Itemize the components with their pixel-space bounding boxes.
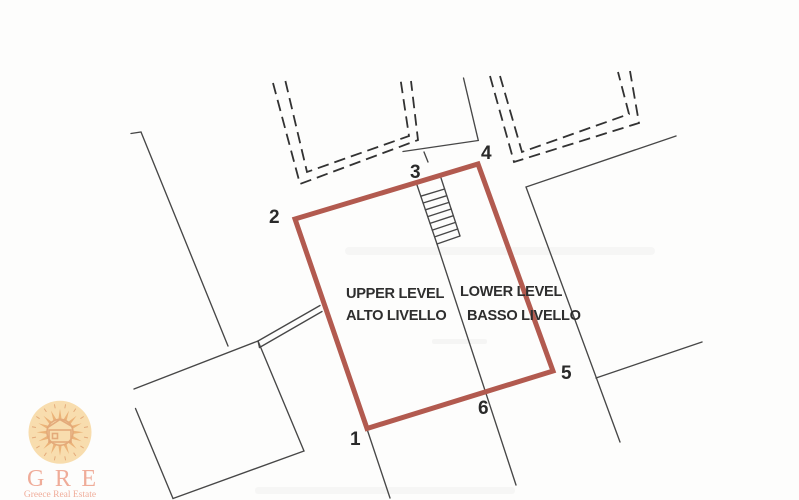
svg-text:LOWER LEVEL: LOWER LEVEL [460,284,562,300]
svg-text:ALTO LIVELLO: ALTO LIVELLO [346,308,446,324]
svg-text:5: 5 [561,363,572,384]
svg-text:Greece Real Estate: Greece Real Estate [24,490,96,500]
svg-text:2: 2 [269,207,280,228]
svg-text:UPPER LEVEL: UPPER LEVEL [346,286,444,302]
svg-text:4: 4 [481,143,492,164]
svg-text:BASSO LIVELLO: BASSO LIVELLO [467,308,581,324]
svg-text:6: 6 [478,398,489,419]
svg-text:GRE: GRE [27,466,107,492]
svg-text:3: 3 [410,162,421,183]
svg-text:1: 1 [350,429,361,450]
